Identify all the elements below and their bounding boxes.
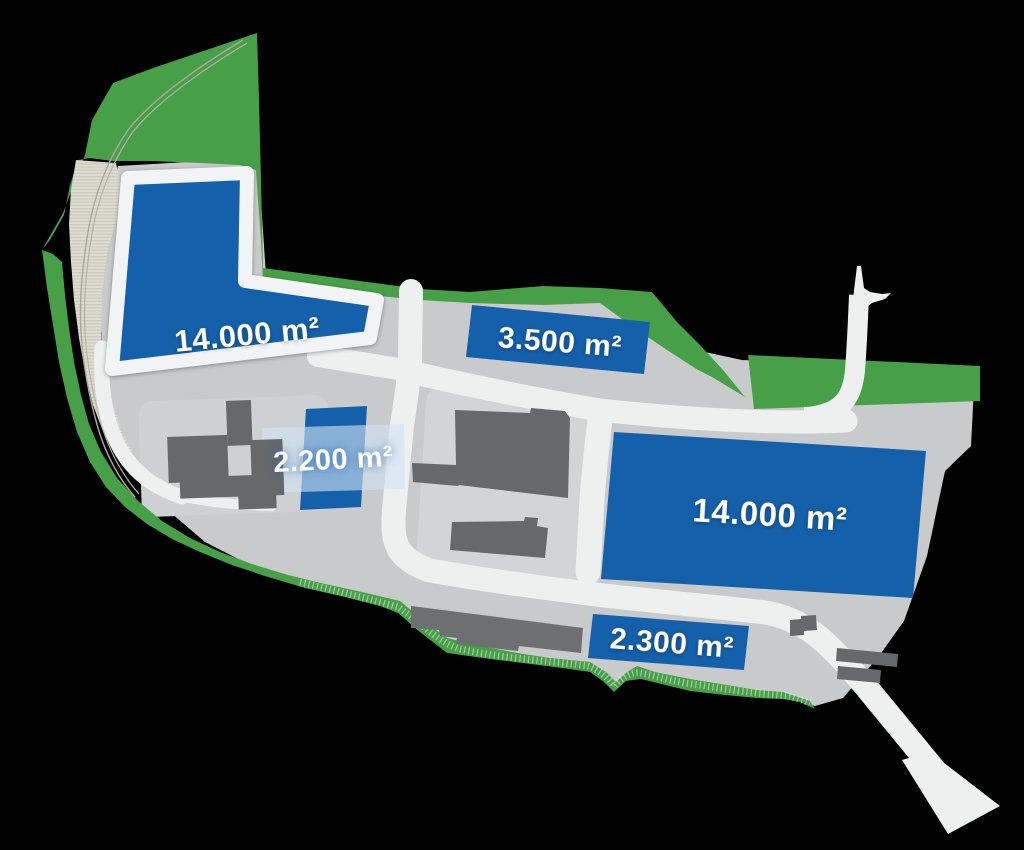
plot-3-label: 2.200 m² xyxy=(272,441,394,479)
road-southeast-exit-wedge xyxy=(902,752,1000,834)
site-plan-map: 14.000 m² 3.500 m² 2.200 m² 14.000 m² 2.… xyxy=(0,0,1024,850)
road-vertical-mid xyxy=(588,418,600,572)
road-branch-west xyxy=(318,356,411,371)
road-northeast-access-tip xyxy=(852,266,891,312)
